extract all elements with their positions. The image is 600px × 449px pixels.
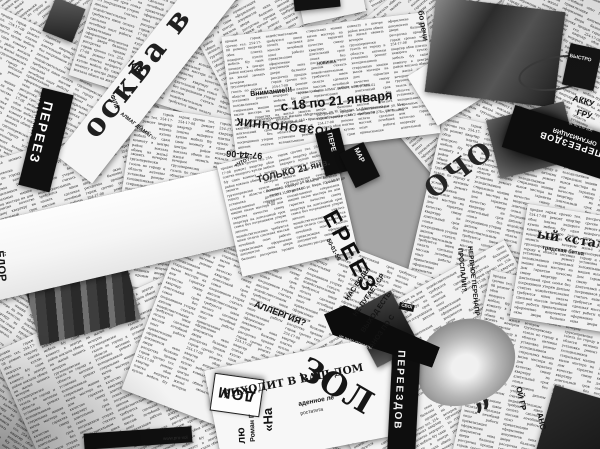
- newspaper-collage-photo: продам гараж срочно тел. 254-17-08 ремон…: [0, 0, 600, 449]
- fragment-na: «На: [261, 407, 276, 432]
- fragment-roman: Роман Г: [249, 414, 258, 442]
- fragment-lyu: лю: [236, 427, 248, 444]
- photo-portrait: [425, 0, 566, 108]
